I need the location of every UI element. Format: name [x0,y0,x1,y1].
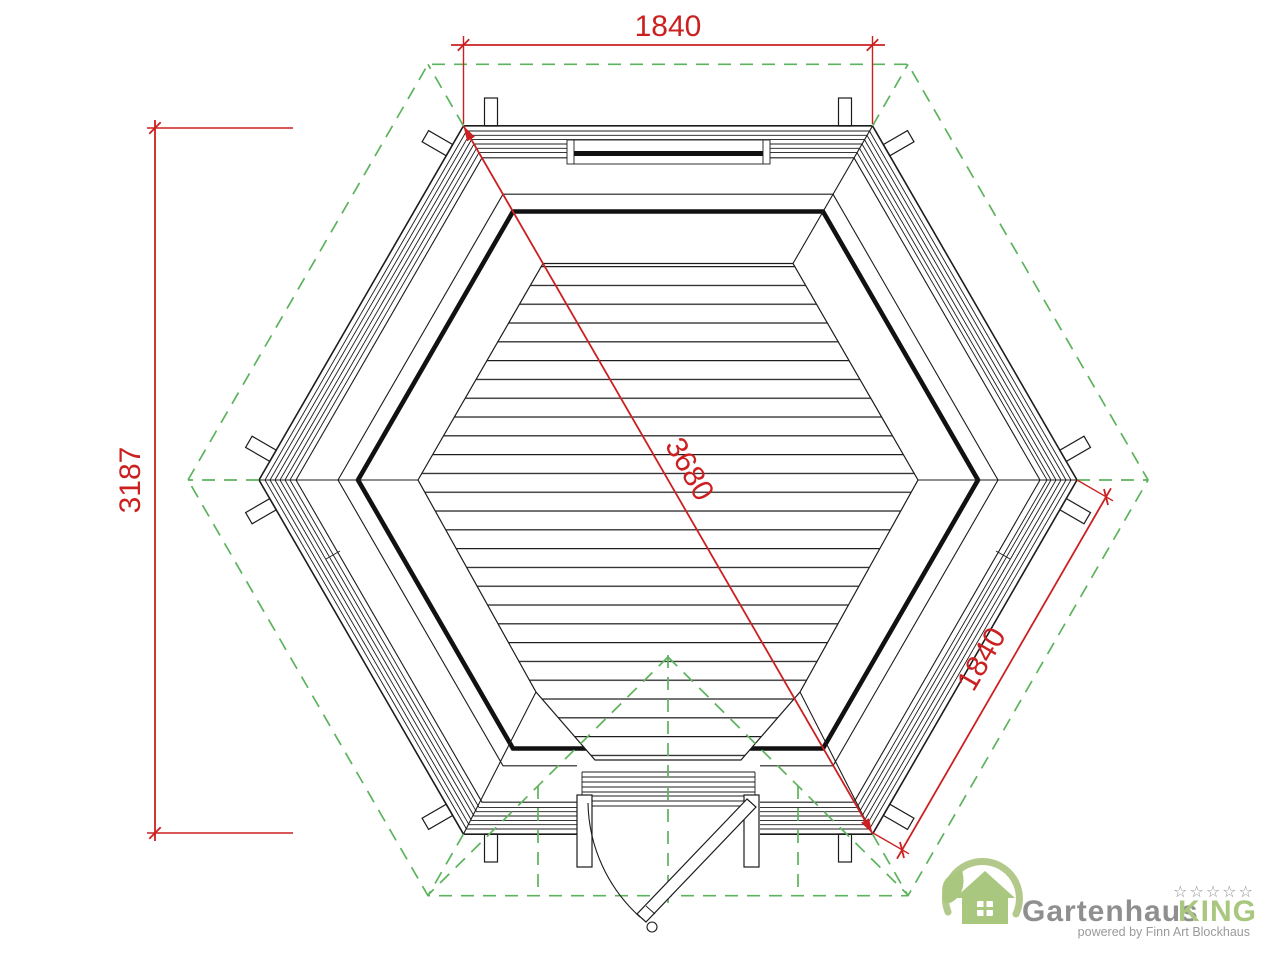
dimension-top-label: 1840 [635,10,702,43]
logo-brand-text: Gartenhaus [1022,895,1199,928]
floor-plan-page: 1840 3187 3680 1840 ☆☆☆☆☆ Gartenhaus KIN… [0,0,1280,960]
dimension-side: 1840 [873,480,1113,859]
dimension-top: 1840 [451,10,885,124]
floor-plan-drawing: 1840 3187 3680 1840 ☆☆☆☆☆ Gartenhaus KIN… [0,0,1280,960]
logo-brand-accent-text: KING [1178,895,1257,928]
logo-tagline: powered by Finn Art Blockhaus [1078,925,1250,939]
top-window [567,140,770,164]
logo-leaf-icon [942,870,963,903]
brand-logo: ☆☆☆☆☆ Gartenhaus KING powered by Finn Ar… [942,861,1257,939]
logo-house-icon [955,871,1015,924]
dimension-side-label: 1840 [951,622,1013,696]
dimension-left-label: 3187 [114,447,147,514]
